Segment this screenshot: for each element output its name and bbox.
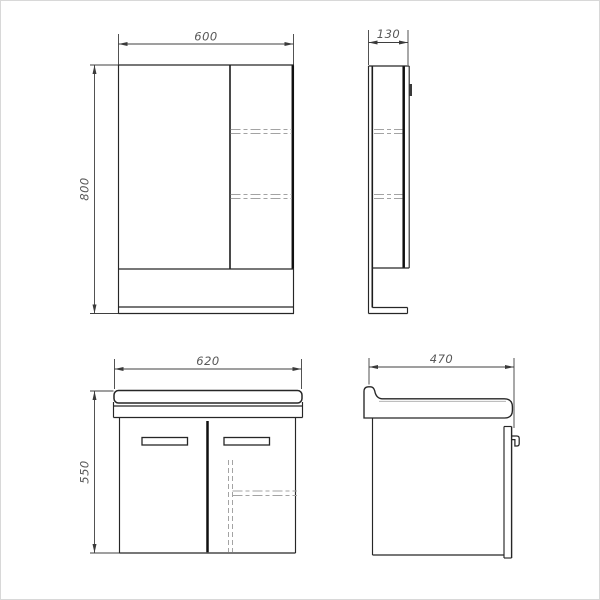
hinge-bracket bbox=[409, 84, 412, 96]
arrowhead-bottom bbox=[93, 544, 97, 553]
dim-label-mirror-width: 600 bbox=[194, 30, 217, 44]
arrowhead-left bbox=[119, 42, 128, 46]
dimension-mirror-width: 600 bbox=[119, 30, 294, 65]
technical-drawing-svg: 600 800 bbox=[1, 1, 600, 600]
dimension-vanity-depth: 470 bbox=[369, 352, 514, 428]
arrowhead-top bbox=[93, 391, 97, 400]
dim-label-vanity-depth: 470 bbox=[430, 352, 453, 366]
dimension-vanity-width: 620 bbox=[115, 354, 302, 389]
mirror-cabinet-side-view: 130 bbox=[369, 27, 413, 314]
arrowhead-left bbox=[115, 367, 124, 371]
dim-label-vanity-height: 550 bbox=[78, 460, 92, 483]
arrowhead-bottom bbox=[93, 305, 97, 314]
dim-label-vanity-width: 620 bbox=[196, 354, 219, 368]
vanity-cabinet-side bbox=[373, 418, 520, 558]
arrowhead-left bbox=[369, 365, 378, 369]
dimension-mirror-height: 800 bbox=[78, 65, 119, 314]
left-door-handle bbox=[142, 438, 188, 446]
washbasin-side bbox=[364, 387, 512, 418]
arrowhead-right bbox=[293, 367, 302, 371]
vanity-front-view: 620 550 bbox=[78, 354, 303, 553]
mirror-cabinet-side-body bbox=[369, 66, 413, 314]
door-handle-profile bbox=[512, 436, 520, 446]
washbasin-front bbox=[114, 391, 303, 418]
arrowhead-right bbox=[505, 365, 514, 369]
basin-profile bbox=[364, 387, 512, 418]
arrowhead-right bbox=[399, 41, 408, 45]
dim-label-mirror-height: 800 bbox=[78, 177, 92, 200]
drawing-canvas: 600 800 bbox=[0, 0, 600, 600]
arrowhead-left bbox=[369, 41, 378, 45]
arrowhead-right bbox=[285, 42, 294, 46]
vanity-side-view: 470 bbox=[364, 352, 519, 558]
dimension-mirror-depth: 130 bbox=[369, 27, 409, 65]
vanity-cabinet-front bbox=[120, 418, 298, 554]
basin-rim bbox=[114, 391, 302, 404]
mirror-cabinet-front-view: 600 800 bbox=[78, 30, 295, 314]
right-door-handle bbox=[224, 438, 270, 446]
mirror-cabinet-front-body bbox=[119, 65, 295, 314]
dim-label-mirror-depth: 130 bbox=[377, 27, 400, 41]
arrowhead-top bbox=[93, 65, 97, 74]
